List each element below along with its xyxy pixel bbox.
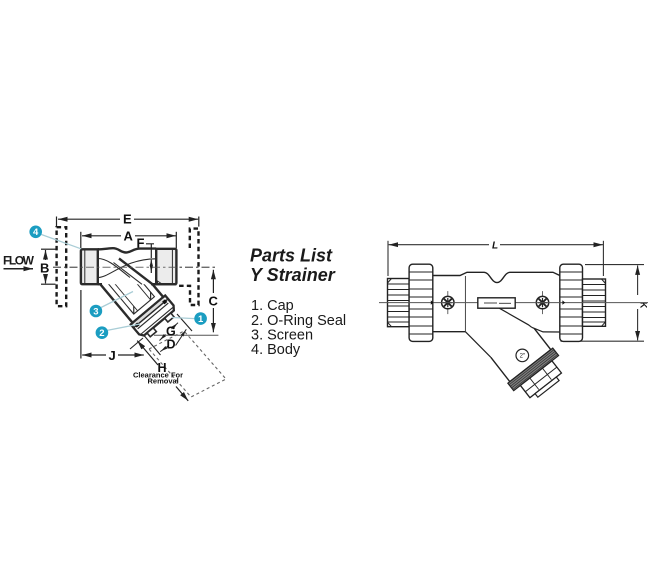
- svg-text:4: 4: [33, 227, 39, 238]
- svg-text:E: E: [123, 212, 132, 227]
- svg-text:Y Strainer: Y Strainer: [250, 265, 336, 285]
- svg-text:1: 1: [198, 314, 204, 325]
- svg-text:J: J: [109, 348, 116, 363]
- svg-text:4. Body: 4. Body: [251, 342, 301, 358]
- svg-text:2: 2: [99, 328, 104, 339]
- svg-text:2″: 2″: [520, 354, 526, 360]
- svg-text:FLOW: FLOW: [3, 254, 35, 268]
- svg-text:2. O-Ring Seal: 2. O-Ring Seal: [251, 313, 346, 329]
- svg-text:Parts List: Parts List: [250, 246, 333, 266]
- svg-text:3. Screen: 3. Screen: [251, 327, 313, 343]
- svg-text:Removal: Removal: [148, 377, 179, 386]
- svg-text:C: C: [209, 293, 219, 308]
- svg-text:F: F: [137, 236, 145, 251]
- svg-text:B: B: [40, 260, 49, 275]
- svg-text:3: 3: [93, 306, 98, 317]
- svg-text:D: D: [167, 337, 176, 351]
- svg-text:A: A: [124, 228, 134, 243]
- svg-text:L: L: [492, 240, 498, 251]
- svg-text:1. Cap: 1. Cap: [251, 298, 294, 314]
